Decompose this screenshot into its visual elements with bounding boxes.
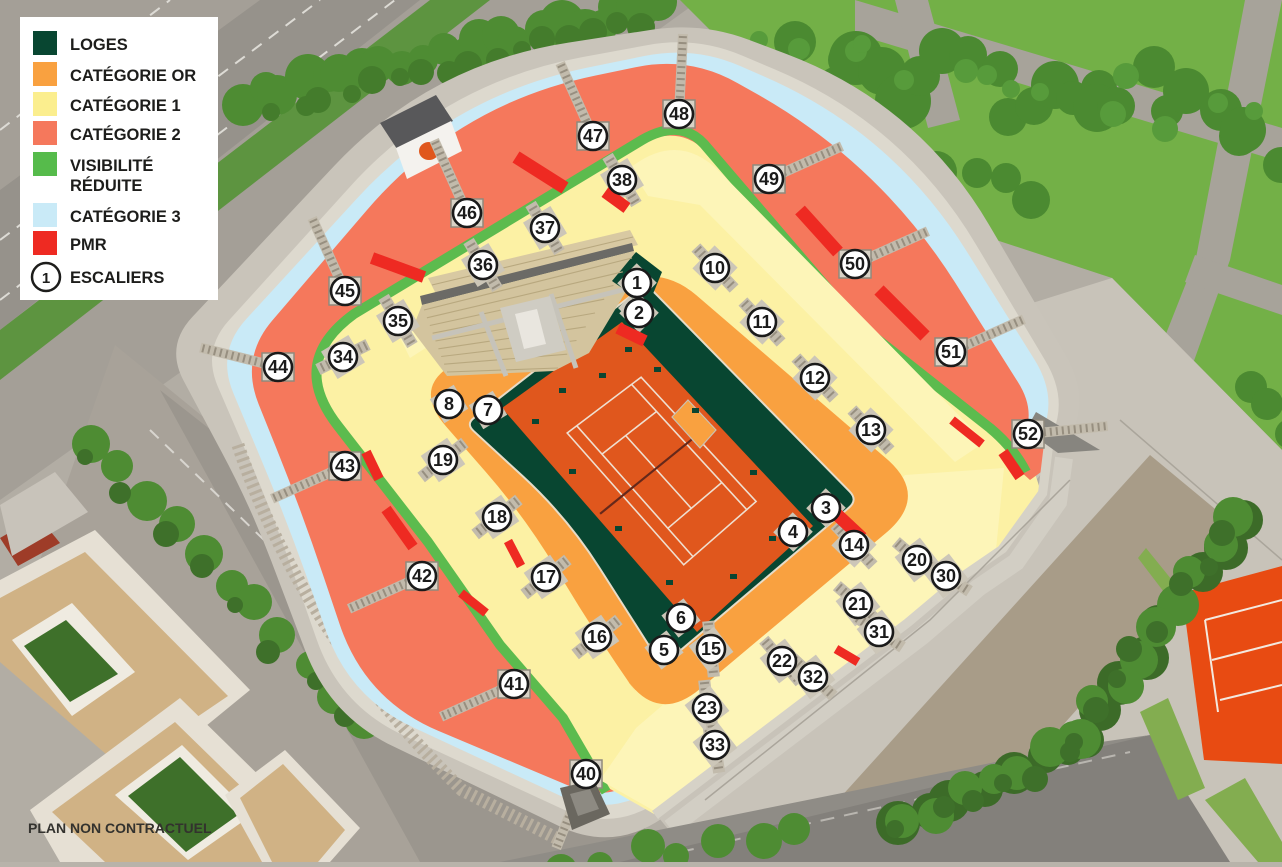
- svg-text:10: 10: [705, 258, 725, 278]
- svg-text:37: 37: [535, 218, 555, 238]
- svg-text:ESCALIERS: ESCALIERS: [70, 269, 164, 287]
- svg-text:32: 32: [803, 667, 823, 687]
- svg-text:CATÉGORIE 1: CATÉGORIE 1: [70, 96, 181, 115]
- svg-text:22: 22: [772, 651, 792, 671]
- svg-text:CATÉGORIE OR: CATÉGORIE OR: [70, 66, 196, 85]
- svg-text:15: 15: [701, 639, 721, 659]
- svg-text:52: 52: [1018, 424, 1038, 444]
- svg-text:48: 48: [669, 104, 689, 124]
- svg-text:18: 18: [487, 507, 507, 527]
- svg-text:19: 19: [433, 450, 453, 470]
- svg-text:2: 2: [634, 303, 644, 323]
- svg-text:16: 16: [587, 627, 607, 647]
- svg-text:17: 17: [536, 567, 556, 587]
- svg-text:LOGES: LOGES: [70, 36, 128, 54]
- svg-text:1: 1: [632, 273, 642, 293]
- svg-text:23: 23: [697, 698, 717, 718]
- svg-text:43: 43: [335, 456, 355, 476]
- svg-text:42: 42: [412, 566, 432, 586]
- svg-text:49: 49: [759, 169, 779, 189]
- svg-text:12: 12: [805, 368, 825, 388]
- svg-text:45: 45: [335, 281, 355, 301]
- svg-text:20: 20: [907, 550, 927, 570]
- svg-text:31: 31: [869, 622, 889, 642]
- svg-text:PLAN NON CONTRACTUEL: PLAN NON CONTRACTUEL: [28, 820, 212, 836]
- svg-text:36: 36: [473, 255, 493, 275]
- svg-text:3: 3: [821, 498, 831, 518]
- svg-text:50: 50: [845, 254, 865, 274]
- svg-text:13: 13: [861, 420, 881, 440]
- svg-text:RÉDUITE: RÉDUITE: [70, 176, 142, 195]
- svg-text:47: 47: [583, 126, 603, 146]
- svg-text:5: 5: [659, 640, 669, 660]
- svg-text:46: 46: [457, 203, 477, 223]
- svg-text:6: 6: [676, 608, 686, 628]
- svg-text:30: 30: [936, 566, 956, 586]
- svg-text:35: 35: [388, 311, 408, 331]
- svg-text:CATÉGORIE 3: CATÉGORIE 3: [70, 207, 181, 226]
- svg-text:38: 38: [612, 170, 632, 190]
- svg-text:41: 41: [504, 674, 524, 694]
- svg-text:PMR: PMR: [70, 236, 107, 254]
- svg-text:7: 7: [483, 400, 493, 420]
- svg-text:51: 51: [941, 342, 961, 362]
- svg-text:11: 11: [752, 312, 771, 332]
- svg-text:14: 14: [844, 535, 864, 555]
- svg-text:40: 40: [576, 764, 596, 784]
- svg-text:44: 44: [268, 357, 288, 377]
- svg-text:34: 34: [333, 347, 353, 367]
- svg-text:8: 8: [444, 394, 454, 414]
- svg-text:33: 33: [705, 735, 725, 755]
- svg-text:CATÉGORIE 2: CATÉGORIE 2: [70, 125, 181, 144]
- svg-text:4: 4: [788, 522, 798, 542]
- svg-text:1: 1: [42, 270, 50, 287]
- svg-text:VISIBILITÉ: VISIBILITÉ: [70, 156, 153, 175]
- svg-text:21: 21: [848, 594, 868, 614]
